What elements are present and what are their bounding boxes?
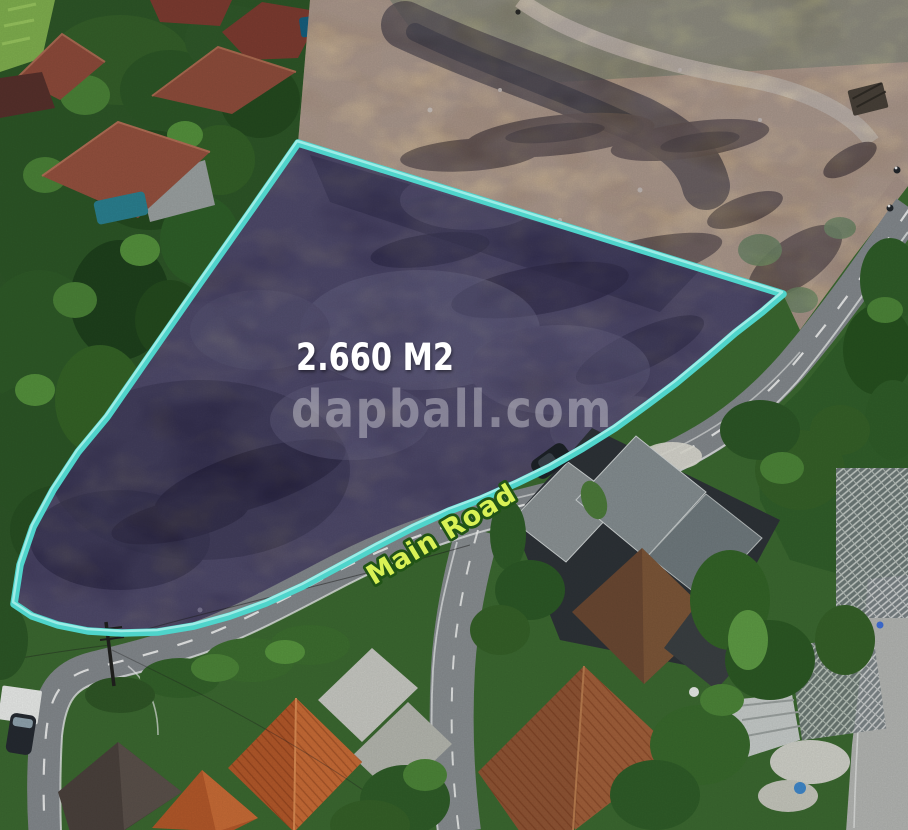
aerial-photo: dapball.com 2.660 M2 Main Road	[0, 0, 908, 830]
area-label: 2.660 M2	[296, 336, 454, 379]
aerial-scene: dapball.com 2.660 M2 Main Road	[0, 0, 908, 830]
watermark-text: dapball.com	[291, 380, 613, 440]
